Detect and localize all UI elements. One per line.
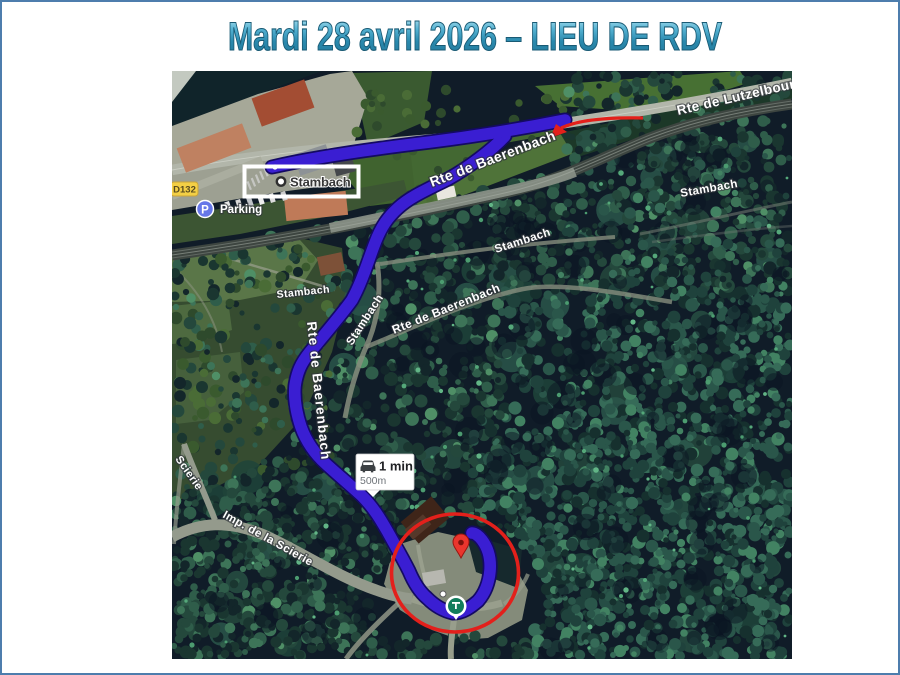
svg-text:1 min: 1 min [379, 459, 413, 474]
svg-text:P: P [201, 205, 209, 217]
svg-text:Stambach: Stambach [290, 175, 351, 190]
svg-text:500m: 500m [360, 475, 387, 487]
svg-text:Mardi 28 avril 2026 – LIEU DE: Mardi 28 avril 2026 – LIEU DE RDV [228, 15, 722, 59]
svg-text:Parking: Parking [220, 204, 262, 216]
svg-text:D132: D132 [173, 185, 196, 196]
